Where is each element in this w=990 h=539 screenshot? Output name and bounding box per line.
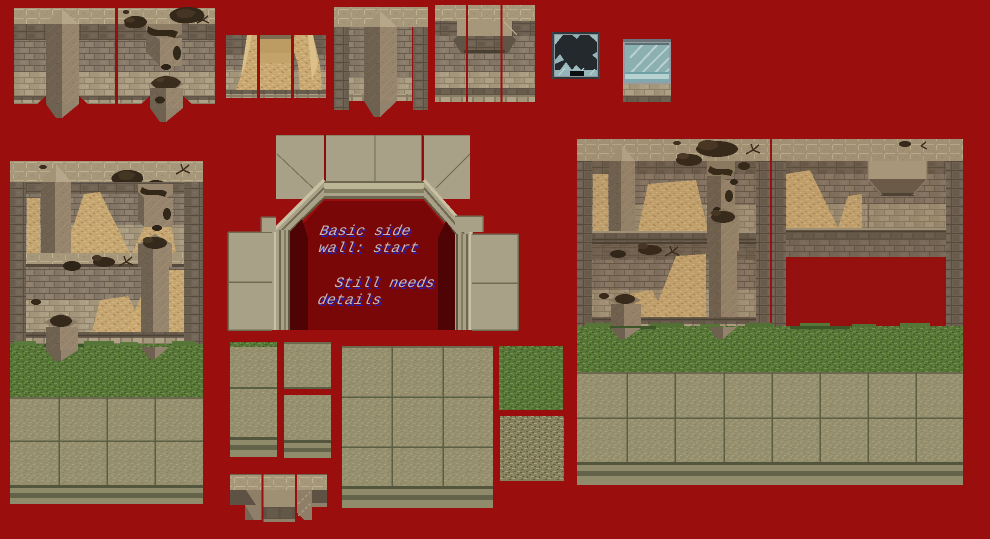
svg-text:wall: start: wall: start — [317, 241, 420, 257]
svg-text:Still needs: Still needs — [333, 276, 436, 292]
svg-text:details: details — [316, 293, 383, 309]
svg-text:Basic side: Basic side — [318, 224, 412, 240]
